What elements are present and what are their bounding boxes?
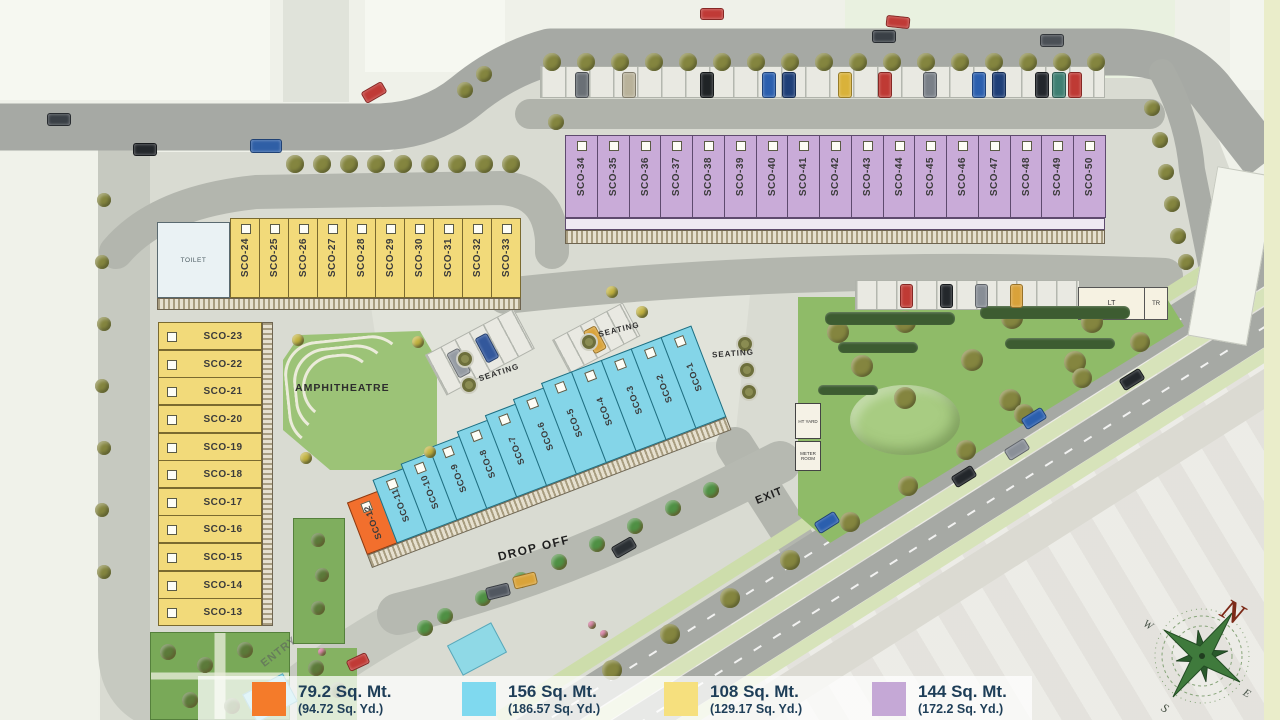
unit-SCO-32: SCO-32	[462, 218, 492, 298]
purple-row-rear-strip	[565, 218, 1105, 230]
meter-room-box: METER ROOM	[795, 441, 821, 471]
door-notch	[328, 224, 338, 234]
offsite-left-strip	[0, 152, 98, 720]
unit-label: SCO-45	[925, 157, 936, 196]
unit-label: SCO-23	[203, 331, 242, 342]
unit-label: SCO-38	[703, 157, 714, 196]
door-notch	[167, 525, 177, 535]
car	[700, 8, 724, 20]
legend-area: 108 Sq. Mt.	[710, 682, 802, 702]
compass-e-label: E	[1240, 686, 1253, 700]
legend-swatch	[252, 682, 286, 716]
legend-area-yd: (94.72 Sq. Yd.)	[298, 702, 392, 717]
unit-label: SCO-41	[798, 157, 809, 196]
unit-SCO-48: SCO-48	[1010, 135, 1043, 218]
legend-area: 79.2 Sq. Mt.	[298, 682, 392, 702]
building-row-sco34-50: SCO-34SCO-35SCO-36SCO-37SCO-38SCO-39SCO-…	[565, 135, 1105, 245]
unit-SCO-47: SCO-47	[978, 135, 1011, 218]
unit-SCO-49: SCO-49	[1041, 135, 1074, 218]
offsite-road-stub	[283, 0, 349, 102]
unit-label: SCO-3	[624, 384, 644, 416]
toilet-label: TOILET	[181, 257, 207, 264]
unit-label: SCO-14	[203, 580, 242, 591]
unit-label: SCO-42	[830, 157, 841, 196]
car	[360, 81, 387, 104]
door-notch	[768, 141, 778, 151]
compass-rose: N E S W	[1122, 588, 1272, 720]
door-notch	[167, 332, 177, 342]
unit-SCO-24: SCO-24	[230, 218, 260, 298]
legend-swatch	[872, 682, 906, 716]
ht-yard-box: HT YARD	[795, 403, 821, 439]
door-notch	[641, 141, 651, 151]
unit-SCO-34: SCO-34	[565, 135, 598, 218]
door-notch	[672, 141, 682, 151]
door-notch	[1022, 141, 1032, 151]
offsite-topleft-plot	[0, 0, 270, 100]
legend-item-4: 144 Sq. Mt.(172.2 Sq. Yd.)	[872, 682, 1007, 717]
garden-strip-vertical	[293, 518, 345, 644]
tr-label: TR	[1152, 301, 1160, 307]
door-notch	[526, 397, 539, 410]
unit-label: SCO-48	[1021, 157, 1032, 196]
unit-SCO-37: SCO-37	[660, 135, 693, 218]
legend-swatch	[664, 682, 698, 716]
unit-label: SCO-11	[389, 488, 411, 524]
unit-label: SCO-46	[957, 157, 968, 196]
unit-SCO-23: SCO-23	[158, 322, 262, 350]
unit-label: SCO-16	[203, 524, 242, 535]
legend-swatch	[462, 682, 496, 716]
unit-label: SCO-18	[203, 469, 242, 480]
unit-label: SCO-37	[671, 157, 682, 196]
compass-w-label: W	[1141, 618, 1156, 633]
parking-strip-top	[540, 66, 1105, 98]
unit-SCO-17: SCO-17	[158, 488, 262, 516]
unit-label: SCO-19	[203, 442, 242, 453]
unit-label: SCO-13	[203, 607, 242, 618]
door-notch	[444, 224, 454, 234]
unit-label: SCO-24	[240, 238, 251, 277]
car	[250, 139, 282, 153]
legend-area: 156 Sq. Mt.	[508, 682, 600, 702]
unit-SCO-14: SCO-14	[158, 571, 262, 599]
lt-label: LT	[1108, 300, 1116, 307]
unit-SCO-38: SCO-38	[692, 135, 725, 218]
door-notch	[386, 224, 396, 234]
car	[47, 113, 71, 126]
unit-SCO-25: SCO-25	[259, 218, 289, 298]
unit-SCO-27: SCO-27	[317, 218, 347, 298]
unit-label: SCO-20	[203, 414, 242, 425]
unit-label: SCO-10	[418, 474, 440, 511]
door-notch	[167, 498, 177, 508]
legend-area-yd: (172.2 Sq. Yd.)	[918, 702, 1007, 717]
door-notch	[167, 360, 177, 370]
unit-label: SCO-28	[356, 238, 367, 277]
unit-label: SCO-50	[1084, 157, 1095, 196]
unit-label: SCO-15	[203, 552, 242, 563]
unit-SCO-15: SCO-15	[158, 543, 262, 571]
legend-item-3: 108 Sq. Mt.(129.17 Sq. Yd.)	[664, 682, 802, 717]
door-notch	[502, 224, 512, 234]
unit-SCO-18: SCO-18	[158, 460, 262, 488]
door-notch	[167, 470, 177, 480]
meter-room-label: METER ROOM	[796, 451, 820, 461]
door-notch	[577, 141, 587, 151]
door-notch	[674, 335, 687, 348]
door-notch	[554, 381, 567, 394]
unit-label: SCO-4	[594, 396, 614, 428]
unit-SCO-41: SCO-41	[787, 135, 820, 218]
unit-label: SCO-29	[385, 238, 396, 277]
unit-label: SCO-27	[327, 238, 338, 277]
door-notch	[926, 141, 936, 151]
unit-label: SCO-30	[414, 238, 425, 277]
yellow-row-units: SCO-24SCO-25SCO-26SCO-27SCO-28SCO-29SCO-…	[230, 218, 521, 298]
door-notch	[167, 581, 177, 591]
door-notch	[704, 141, 714, 151]
building-row-sco24-33: TOILET SCO-24SCO-25SCO-26SCO-27SCO-28SCO…	[157, 218, 521, 310]
offsite-top-plot	[365, 0, 505, 72]
door-notch	[863, 141, 873, 151]
amphitheatre-label: AMPHITHEATRE	[295, 382, 390, 394]
utility-building: LT TR	[1078, 287, 1168, 320]
unit-label: SCO-33	[501, 238, 512, 277]
unit-SCO-40: SCO-40	[756, 135, 789, 218]
yellow-column-units: SCO-23SCO-22SCO-21SCO-20SCO-19SCO-18SCO-…	[158, 322, 262, 626]
unit-SCO-33: SCO-33	[491, 218, 521, 298]
unit-SCO-31: SCO-31	[433, 218, 463, 298]
unit-label: SCO-43	[862, 157, 873, 196]
unit-SCO-29: SCO-29	[375, 218, 405, 298]
door-notch	[167, 443, 177, 453]
door-notch	[299, 224, 309, 234]
unit-label: SCO-39	[735, 157, 746, 196]
unit-SCO-35: SCO-35	[597, 135, 630, 218]
unit-label: SCO-32	[472, 238, 483, 277]
door-notch	[498, 413, 511, 426]
door-notch	[1085, 141, 1095, 151]
unit-SCO-16: SCO-16	[158, 515, 262, 543]
unit-label: SCO-36	[640, 157, 651, 196]
arcade-hatch	[157, 298, 521, 310]
door-notch	[470, 429, 483, 442]
unit-SCO-44: SCO-44	[883, 135, 916, 218]
unit-label: SCO-8	[477, 449, 497, 481]
unit-label: SCO-1	[683, 361, 703, 393]
door-notch	[414, 462, 427, 475]
park-mound	[850, 385, 960, 455]
unit-SCO-19: SCO-19	[158, 433, 262, 461]
unit-label: SCO-6	[535, 421, 555, 453]
unit-label: SCO-35	[608, 157, 619, 196]
door-notch	[241, 224, 251, 234]
door-notch	[1053, 141, 1063, 151]
unit-label: SCO-47	[989, 157, 1000, 196]
toilet-block: TOILET	[157, 222, 230, 298]
door-notch	[442, 445, 455, 458]
tr-room: TR	[1145, 288, 1167, 319]
unit-SCO-45: SCO-45	[914, 135, 947, 218]
door-notch	[167, 553, 177, 563]
unit-label: SCO-26	[298, 238, 309, 277]
door-notch	[990, 141, 1000, 151]
door-notch	[614, 358, 627, 371]
unit-SCO-39: SCO-39	[724, 135, 757, 218]
door-notch	[958, 141, 968, 151]
ht-yard-label: HT YARD	[798, 419, 817, 424]
unit-SCO-43: SCO-43	[851, 135, 884, 218]
unit-SCO-30: SCO-30	[404, 218, 434, 298]
door-notch	[167, 415, 177, 425]
unit-SCO-42: SCO-42	[819, 135, 852, 218]
unit-label: SCO-21	[203, 386, 242, 397]
unit-SCO-50: SCO-50	[1073, 135, 1106, 218]
unit-label: SCO-7	[506, 435, 526, 467]
unit-label: SCO-49	[1052, 157, 1063, 196]
tree	[457, 82, 473, 98]
door-notch	[736, 141, 746, 151]
unit-SCO-28: SCO-28	[346, 218, 376, 298]
unit-label: SCO-34	[576, 157, 587, 196]
unit-SCO-22: SCO-22	[158, 350, 262, 378]
door-notch	[799, 141, 809, 151]
door-notch	[895, 141, 905, 151]
door-notch	[167, 608, 177, 618]
door-notch	[415, 224, 425, 234]
door-notch	[609, 141, 619, 151]
unit-label: SCO-5	[564, 407, 584, 439]
site-plan-canvas: TOILET SCO-24SCO-25SCO-26SCO-27SCO-28SCO…	[0, 0, 1280, 720]
unit-SCO-46: SCO-46	[946, 135, 979, 218]
door-notch	[584, 369, 597, 382]
legend-area: 144 Sq. Mt.	[918, 682, 1007, 702]
legend-area-yd: (186.57 Sq. Yd.)	[508, 702, 600, 717]
unit-label: SCO-22	[203, 359, 242, 370]
arcade-hatch-vertical	[262, 322, 273, 626]
legend-item-1: 79.2 Sq. Mt.(94.72 Sq. Yd.)	[252, 682, 392, 717]
door-notch	[644, 346, 657, 359]
door-notch	[357, 224, 367, 234]
lt-room: LT	[1079, 288, 1145, 319]
purple-row-units: SCO-34SCO-35SCO-36SCO-37SCO-38SCO-39SCO-…	[565, 135, 1105, 218]
parking-strip-park	[855, 280, 1080, 310]
unit-SCO-20: SCO-20	[158, 405, 262, 433]
legend-area-yd: (129.17 Sq. Yd.)	[710, 702, 802, 717]
unit-SCO-36: SCO-36	[629, 135, 662, 218]
unit-label: SCO-9	[448, 462, 468, 494]
legend-item-2: 156 Sq. Mt.(186.57 Sq. Yd.)	[462, 682, 600, 717]
unit-SCO-21: SCO-21	[158, 377, 262, 405]
unit-label: SCO-25	[269, 238, 280, 277]
arcade-hatch	[565, 230, 1105, 244]
unit-label: SCO-40	[767, 157, 778, 196]
unit-label: SCO-12	[361, 504, 383, 541]
door-notch	[831, 141, 841, 151]
unit-SCO-13: SCO-13	[158, 598, 262, 626]
compass-s-label: S	[1159, 700, 1171, 715]
door-notch	[473, 224, 483, 234]
door-notch	[167, 387, 177, 397]
building-column-sco13-23: SCO-23SCO-22SCO-21SCO-20SCO-19SCO-18SCO-…	[158, 322, 274, 626]
unit-label: SCO-31	[443, 238, 454, 277]
door-notch	[270, 224, 280, 234]
unit-label: SCO-2	[654, 373, 674, 405]
unit-label: SCO-44	[894, 157, 905, 196]
unit-label: SCO-17	[203, 497, 242, 508]
unit-SCO-26: SCO-26	[288, 218, 318, 298]
